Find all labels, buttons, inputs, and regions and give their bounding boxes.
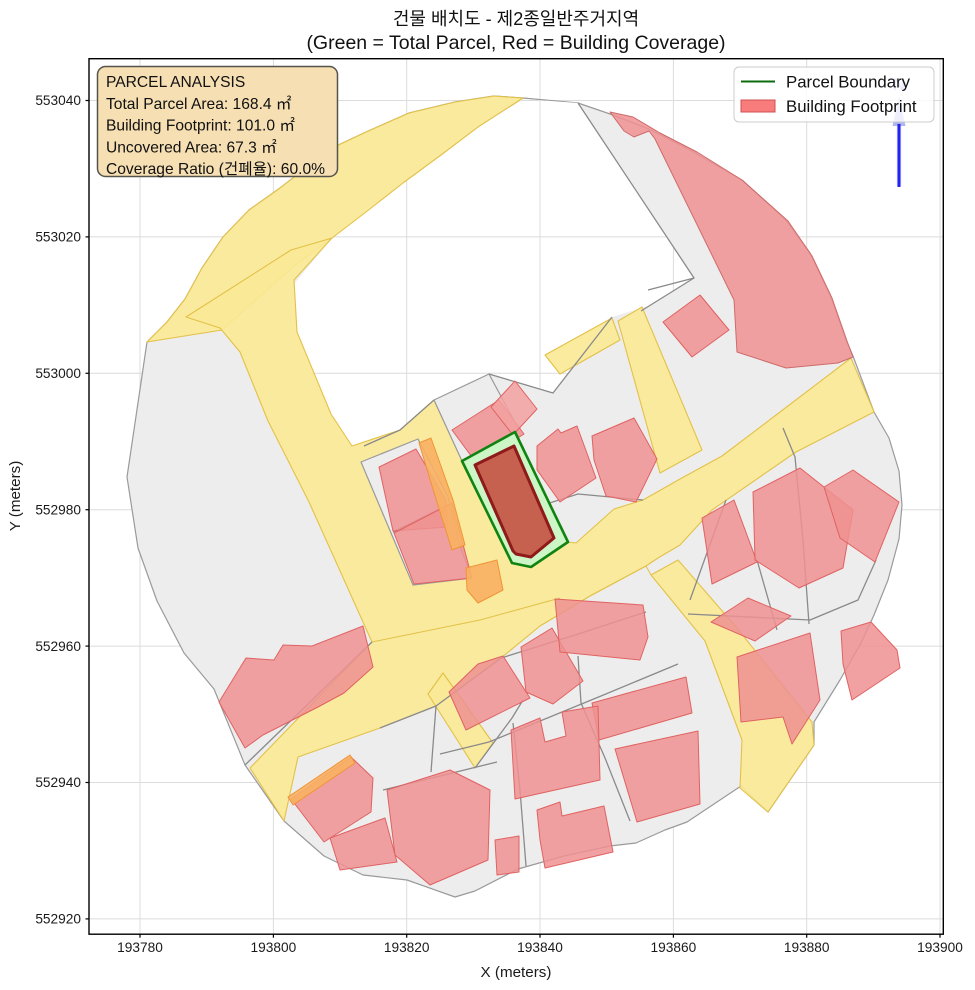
svg-text:Uncovered Area: 67.3 ㎡: Uncovered Area: 67.3 ㎡ — [106, 138, 277, 156]
svg-text:552960: 552960 — [35, 639, 81, 654]
svg-text:553020: 553020 — [35, 230, 81, 245]
svg-text:Building Footprint: 101.0 ㎡: Building Footprint: 101.0 ㎡ — [106, 117, 295, 135]
svg-text:Building Footprint: Building Footprint — [786, 97, 917, 116]
svg-text:PARCEL ANALYSIS: PARCEL ANALYSIS — [106, 74, 245, 91]
svg-text:Y (meters): Y (meters) — [7, 461, 24, 532]
svg-text:553000: 553000 — [35, 366, 81, 381]
svg-text:Total Parcel Area: 168.4 ㎡: Total Parcel Area: 168.4 ㎡ — [106, 95, 292, 113]
svg-text:193820: 193820 — [384, 940, 430, 955]
svg-text:552940: 552940 — [35, 775, 81, 790]
svg-text:(Green = Total Parcel, Red = B: (Green = Total Parcel, Red = Building Co… — [306, 32, 725, 54]
svg-text:193880: 193880 — [784, 940, 830, 955]
svg-text:193900: 193900 — [917, 940, 963, 955]
svg-text:193840: 193840 — [517, 940, 563, 955]
svg-text:Coverage Ratio (건폐율): 60.0%: Coverage Ratio (건폐율): 60.0% — [106, 160, 325, 178]
svg-text:건물 배치도 - 제2종일반주거지역: 건물 배치도 - 제2종일반주거지역 — [393, 9, 639, 29]
svg-text:552980: 552980 — [35, 502, 81, 517]
svg-text:193780: 193780 — [117, 940, 163, 955]
svg-text:193800: 193800 — [251, 940, 297, 955]
svg-text:193860: 193860 — [651, 940, 697, 955]
svg-text:553040: 553040 — [35, 93, 81, 108]
svg-text:552920: 552920 — [35, 912, 81, 927]
svg-text:Parcel Boundary: Parcel Boundary — [786, 73, 911, 92]
svg-text:X (meters): X (meters) — [481, 964, 552, 981]
